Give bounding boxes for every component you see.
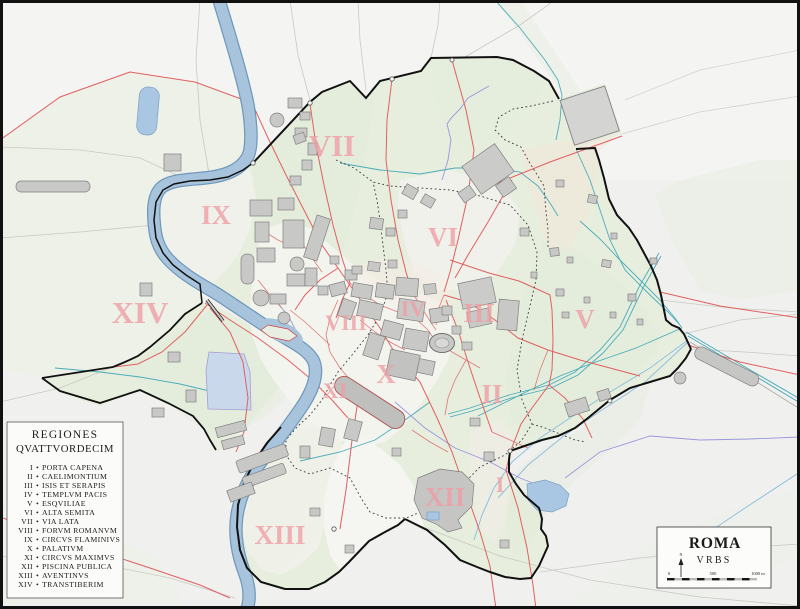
svg-text:CAELIMONTIUM: CAELIMONTIUM (42, 472, 107, 481)
svg-text:VII: VII (21, 517, 33, 526)
svg-text:VI: VI (24, 508, 33, 517)
svg-text:•: • (36, 535, 39, 544)
svg-text:•: • (36, 499, 39, 508)
svg-text:•: • (36, 544, 39, 553)
svg-text:IX: IX (24, 535, 33, 544)
svg-text:•: • (36, 481, 39, 490)
svg-text:VI: VI (428, 222, 458, 252)
svg-text:•: • (36, 553, 39, 562)
svg-text:VRBS: VRBS (697, 555, 732, 566)
svg-text:CIRCVS MAXIMVS: CIRCVS MAXIMVS (42, 553, 115, 562)
svg-text:•: • (36, 463, 39, 472)
svg-text:V: V (575, 304, 595, 334)
svg-text:XII: XII (425, 482, 466, 512)
svg-text:ISIS ET SERAPIS: ISIS ET SERAPIS (42, 481, 106, 490)
svg-text:QVATTVORDECIM: QVATTVORDECIM (16, 443, 114, 455)
svg-text:ROMA: ROMA (689, 535, 741, 552)
svg-text:IV: IV (24, 490, 33, 499)
svg-text:•: • (36, 472, 39, 481)
svg-text:X: X (27, 544, 33, 553)
svg-text:VIA LATA: VIA LATA (42, 517, 79, 526)
svg-text:V: V (27, 499, 33, 508)
svg-text:XI: XI (24, 553, 33, 562)
svg-text:•: • (36, 490, 39, 499)
svg-text:•: • (36, 517, 39, 526)
svg-text:REGIONES: REGIONES (32, 429, 98, 441)
svg-text:VIII: VIII (18, 526, 33, 535)
svg-text:II: II (481, 379, 502, 409)
svg-text:VIII: VIII (325, 310, 367, 335)
svg-text:•: • (36, 562, 39, 571)
svg-text:IV: IV (401, 296, 426, 321)
svg-text:III: III (463, 298, 495, 328)
svg-text:CIRCVS FLAMINIVS: CIRCVS FLAMINIVS (42, 535, 120, 544)
svg-text:XIV: XIV (112, 295, 169, 330)
svg-text:FORVM ROMANVM: FORVM ROMANVM (42, 526, 117, 535)
svg-text:PORTA CAPENA: PORTA CAPENA (42, 463, 103, 472)
svg-text:ESQVILIAE: ESQVILIAE (42, 499, 86, 508)
svg-text:N: N (680, 552, 683, 557)
svg-text:XI: XI (323, 378, 347, 403)
svg-text:XIV: XIV (18, 580, 33, 589)
svg-text:500: 500 (710, 571, 718, 576)
svg-text:III: III (24, 481, 33, 490)
svg-text:XIII: XIII (18, 571, 33, 580)
svg-text:•: • (36, 571, 39, 580)
svg-text:XIII: XIII (254, 520, 305, 550)
svg-text:1000 m: 1000 m (751, 571, 765, 576)
svg-text:VII: VII (309, 128, 356, 163)
svg-text:TEMPLVM PACIS: TEMPLVM PACIS (42, 490, 107, 499)
svg-text:IX: IX (201, 200, 232, 230)
svg-text:AVENTINVS: AVENTINVS (42, 571, 89, 580)
svg-text:I: I (496, 472, 505, 497)
svg-text:TRANSTIBERIM: TRANSTIBERIM (42, 580, 104, 589)
svg-text:X: X (376, 359, 396, 389)
svg-text:XII: XII (21, 562, 33, 571)
svg-text:I: I (30, 463, 33, 472)
svg-text:ALTA SEMITA: ALTA SEMITA (42, 508, 95, 517)
svg-text:•: • (36, 526, 39, 535)
svg-text:•: • (36, 580, 39, 589)
svg-text:II: II (27, 472, 33, 481)
svg-text:PISCINA PUBLICA: PISCINA PUBLICA (42, 562, 112, 571)
svg-text:PALATIVM: PALATIVM (42, 544, 84, 553)
svg-text:•: • (36, 508, 39, 517)
